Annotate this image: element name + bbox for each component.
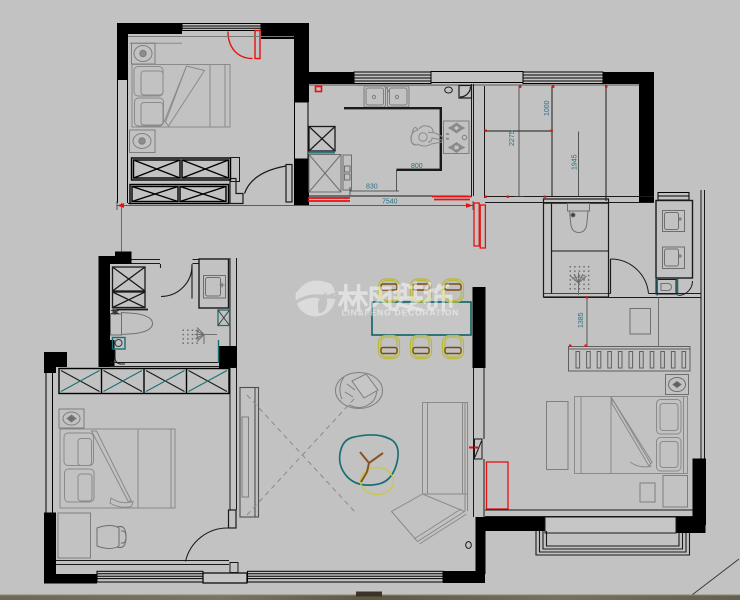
svg-text:LIN&FENG DECORATION: LIN&FENG DECORATION xyxy=(342,308,460,318)
svg-text:1945: 1945 xyxy=(572,154,579,170)
svg-text:2275: 2275 xyxy=(509,130,516,146)
svg-text:830: 830 xyxy=(366,184,378,191)
svg-text:1385: 1385 xyxy=(578,312,585,328)
svg-text:1000: 1000 xyxy=(544,100,551,116)
svg-text:7540: 7540 xyxy=(382,199,398,206)
svg-text:800: 800 xyxy=(411,163,423,170)
